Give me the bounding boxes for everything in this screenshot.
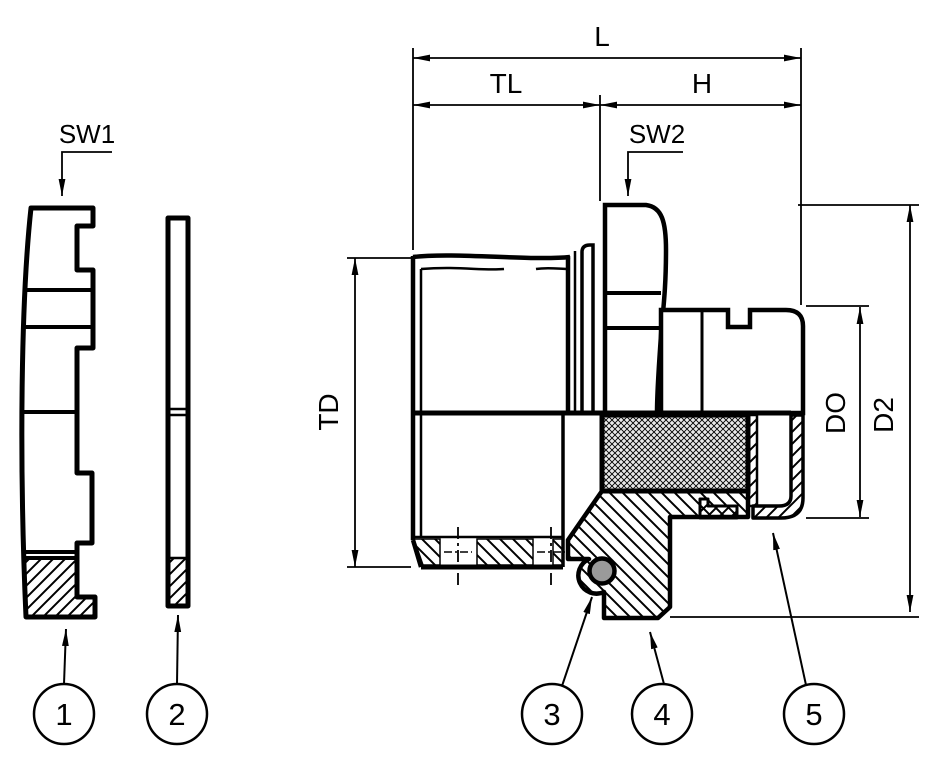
part2-outline [168, 218, 188, 606]
callout-5: 5 [773, 533, 844, 744]
thread-crest-line [413, 255, 570, 258]
part2-section-hatch [170, 559, 186, 604]
cable-gland-section-drawing: L TL H TD DO D2 SW1 SW2 1 2 [0, 0, 945, 780]
td-extension-ticks [347, 258, 411, 567]
callout-4-number: 4 [653, 697, 670, 732]
main-assembly-view [411, 205, 803, 618]
callout-3-number: 3 [543, 697, 560, 732]
callout-2-leader [177, 615, 178, 684]
callout-1-number: 1 [55, 697, 72, 732]
callout-3-leader [562, 597, 592, 686]
cap-inner-wall [748, 415, 757, 506]
dim-label-D2: D2 [868, 397, 899, 433]
cap-top [661, 310, 803, 413]
technical-drawing-page: L TL H TD DO D2 SW1 SW2 1 2 [0, 0, 945, 780]
part1-locknut-view [22, 208, 95, 617]
dim-label-H: H [692, 68, 712, 99]
o-ring [590, 559, 615, 584]
part1-section-hatch [24, 558, 95, 615]
callout-3: 3 [522, 597, 592, 744]
dim-label-L: L [594, 21, 610, 52]
thread-root-line [421, 268, 568, 269]
callout-1-leader [64, 629, 66, 684]
sw1-leader [62, 152, 112, 196]
dim-label-SW1: SW1 [59, 119, 115, 149]
callout-2: 2 [147, 615, 207, 744]
callout-4: 4 [632, 632, 692, 744]
thread-sleeve-fill [413, 256, 570, 413]
part2-feature-lines [168, 409, 188, 558]
callout-5-number: 5 [805, 697, 822, 732]
part2-washer-view [168, 218, 188, 606]
dim-label-TL: TL [490, 68, 523, 99]
dim-label-DO: DO [820, 392, 851, 434]
callout-5-leader [773, 533, 806, 685]
cap-wall-section [753, 415, 803, 518]
thread-section-hatch-2 [477, 539, 533, 565]
callout-1: 1 [34, 629, 94, 744]
callout-4-leader [650, 632, 664, 684]
dim-label-SW2: SW2 [629, 119, 685, 149]
dim-label-TD: TD [313, 393, 344, 430]
hex-nut [605, 205, 666, 413]
callout-2-number: 2 [168, 697, 185, 732]
sw2-leader [628, 152, 683, 196]
seal-insert [602, 415, 748, 491]
collar-ring [582, 245, 593, 413]
